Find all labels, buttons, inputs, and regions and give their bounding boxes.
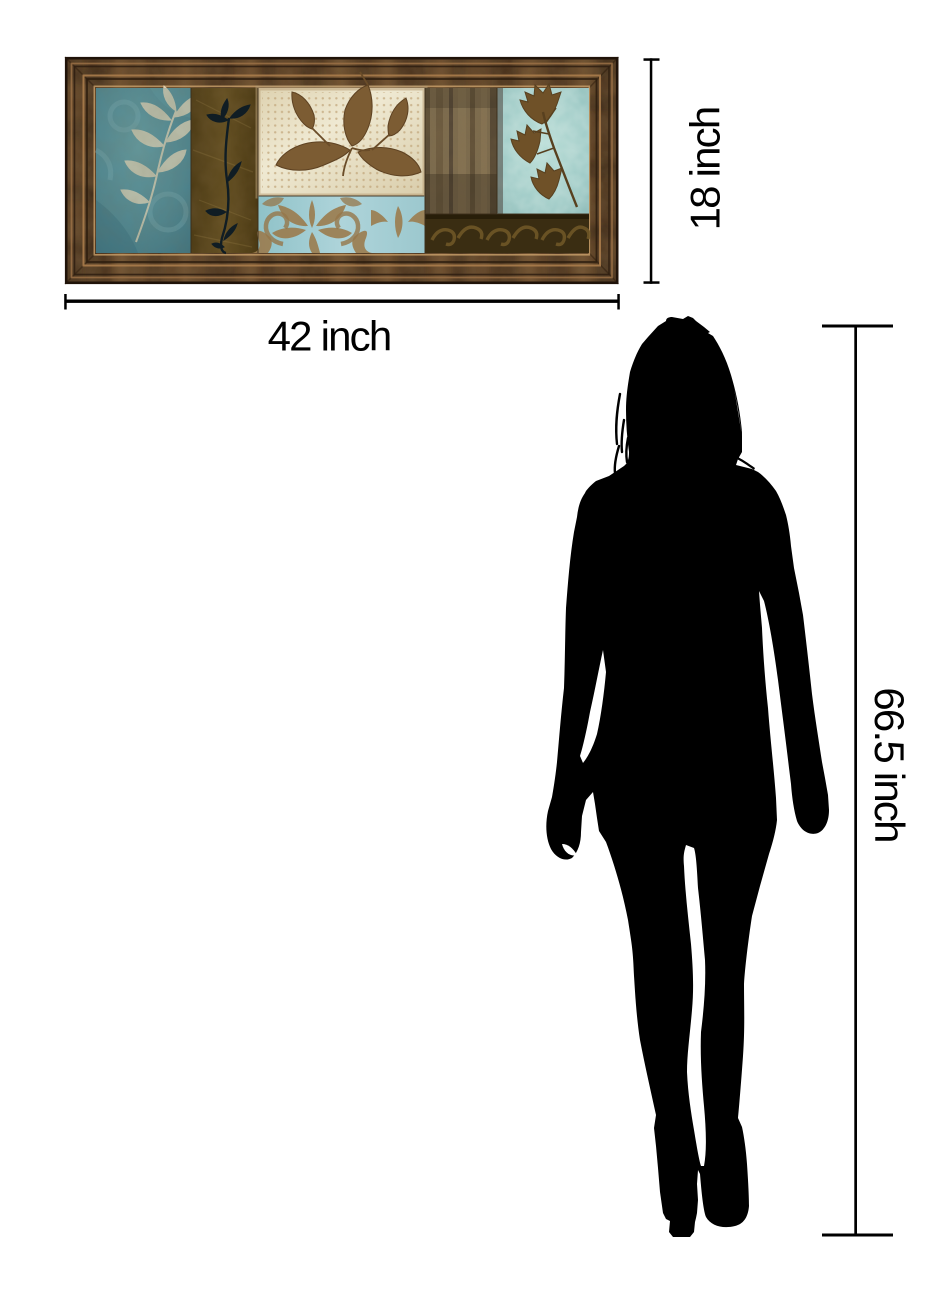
svg-text:42 inch: 42 inch — [268, 313, 391, 360]
svg-text:18 inch: 18 inch — [682, 108, 729, 231]
svg-text:66.5 inch: 66.5 inch — [866, 687, 913, 841]
